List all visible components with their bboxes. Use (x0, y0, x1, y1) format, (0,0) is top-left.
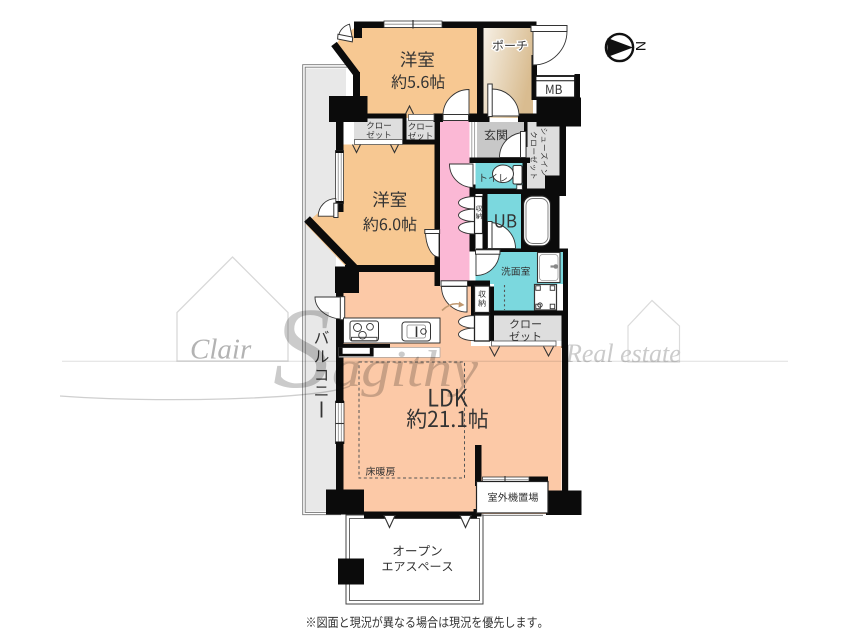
svg-text:Real estate: Real estate (565, 339, 681, 368)
svg-text:agithy: agithy (332, 341, 479, 398)
svg-text:N: N (633, 41, 649, 51)
svg-text:Clair: Clair (190, 334, 252, 366)
svg-text:S: S (273, 285, 331, 413)
